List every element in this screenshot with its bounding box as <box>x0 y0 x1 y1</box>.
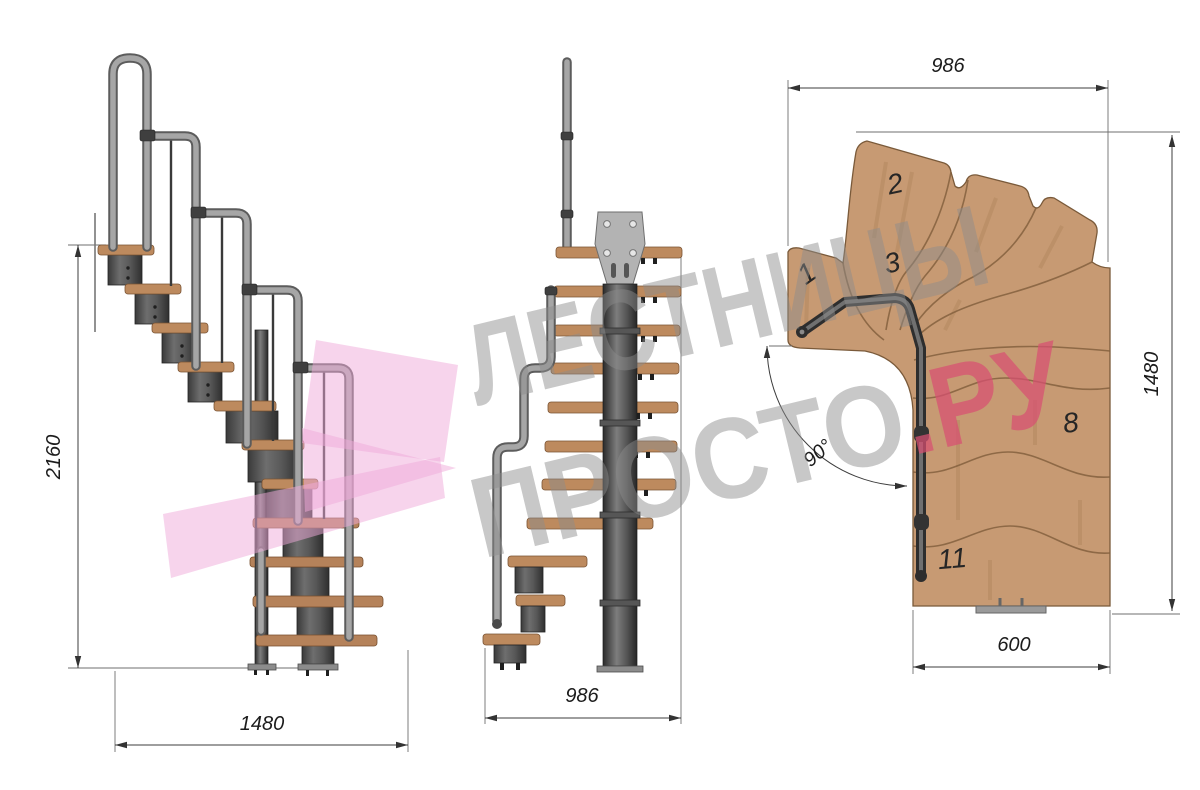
plate-hole <box>630 221 637 228</box>
step-module <box>494 645 526 663</box>
step-module <box>297 606 333 636</box>
side-height-dimension: 2160 <box>43 435 65 481</box>
tread <box>483 634 540 645</box>
pole-foot <box>248 664 276 670</box>
plan-bottom-dimension: 600 <box>997 634 1030 656</box>
pole-joint <box>600 600 640 606</box>
step-module <box>135 294 169 324</box>
plan-width-dimension: 986 <box>931 55 965 77</box>
pole-foot <box>597 666 643 672</box>
step-module <box>291 567 329 597</box>
step-module <box>188 372 222 402</box>
turn-module <box>248 450 300 482</box>
blueprint-page: 2160 1480 <box>0 0 1200 790</box>
rail-clamp <box>293 362 308 373</box>
step-module <box>162 333 196 363</box>
base-plate <box>976 606 1046 613</box>
rail-clamp <box>191 207 206 218</box>
plate-hole <box>604 250 611 257</box>
turn-module <box>226 411 278 443</box>
tread <box>125 284 181 294</box>
staircase-drawing: 2160 1480 <box>0 0 1200 790</box>
rail-joint <box>914 514 929 530</box>
tread-label-11: 11 <box>936 542 968 575</box>
plate-hole <box>604 221 611 228</box>
step-module <box>108 255 142 285</box>
rail-end-cap <box>492 619 502 629</box>
module-foot <box>298 664 338 670</box>
step-module <box>521 606 545 632</box>
plate-hole <box>630 250 637 257</box>
side-run-dimension: 1480 <box>240 713 285 735</box>
front-width-dimension: 986 <box>565 685 599 707</box>
tread <box>178 362 234 372</box>
rail-clamp <box>561 210 573 218</box>
rail-clamp <box>242 284 257 295</box>
tread-board <box>253 596 383 607</box>
rail-clamp <box>561 132 573 140</box>
plan-depth-dimension: 1480 <box>1141 352 1163 397</box>
tread-board <box>256 635 377 646</box>
step-module <box>302 645 334 664</box>
rail-end-cap <box>915 570 927 582</box>
tread <box>516 595 565 606</box>
rail-clamp <box>140 130 155 141</box>
